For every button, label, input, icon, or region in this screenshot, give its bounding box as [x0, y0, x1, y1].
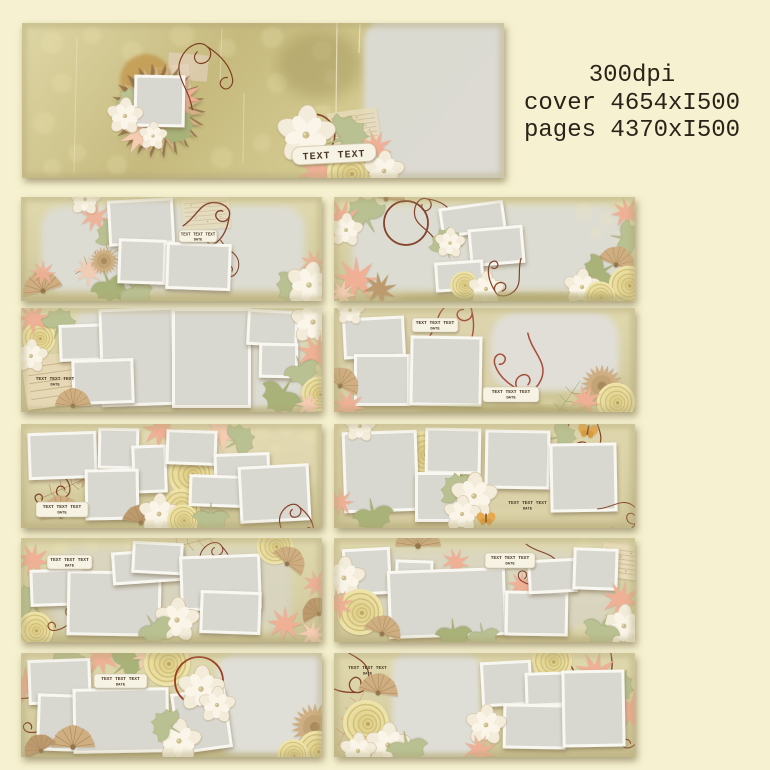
svg-text:DATE: DATE: [506, 397, 516, 401]
svg-text:DATE: DATE: [50, 384, 60, 388]
svg-text:TEXT TEXT TEXT: TEXT TEXT TEXT: [492, 389, 531, 395]
svg-text:DATE: DATE: [430, 328, 440, 332]
svg-text:TEXT TEXT TEXT: TEXT TEXT TEXT: [416, 320, 455, 326]
svg-text:TEXT TEXT TEXT: TEXT TEXT TEXT: [43, 504, 82, 510]
svg-text:TEXT TEXT TEXT: TEXT TEXT TEXT: [491, 555, 530, 561]
svg-text:TEXT TEXT TEXT: TEXT TEXT TEXT: [181, 233, 216, 237]
svg-text:DATE: DATE: [194, 239, 202, 243]
svg-text:TEXT TEXT TEXT: TEXT TEXT TEXT: [348, 665, 387, 671]
svg-text:DATE: DATE: [57, 512, 67, 516]
svg-text:TEXT TEXT TEXT: TEXT TEXT TEXT: [50, 557, 89, 563]
svg-text:DATE: DATE: [65, 565, 75, 569]
svg-text:DATE: DATE: [363, 673, 373, 677]
svg-text:DATE: DATE: [523, 508, 533, 512]
svg-text:TEXT TEXT TEXT: TEXT TEXT TEXT: [36, 376, 75, 382]
svg-text:TEXT TEXT TEXT: TEXT TEXT TEXT: [101, 676, 140, 682]
svg-text:TEXT TEXT TEXT: TEXT TEXT TEXT: [508, 500, 547, 506]
svg-text:DATE: DATE: [505, 563, 515, 567]
svg-text:DATE: DATE: [116, 684, 126, 688]
